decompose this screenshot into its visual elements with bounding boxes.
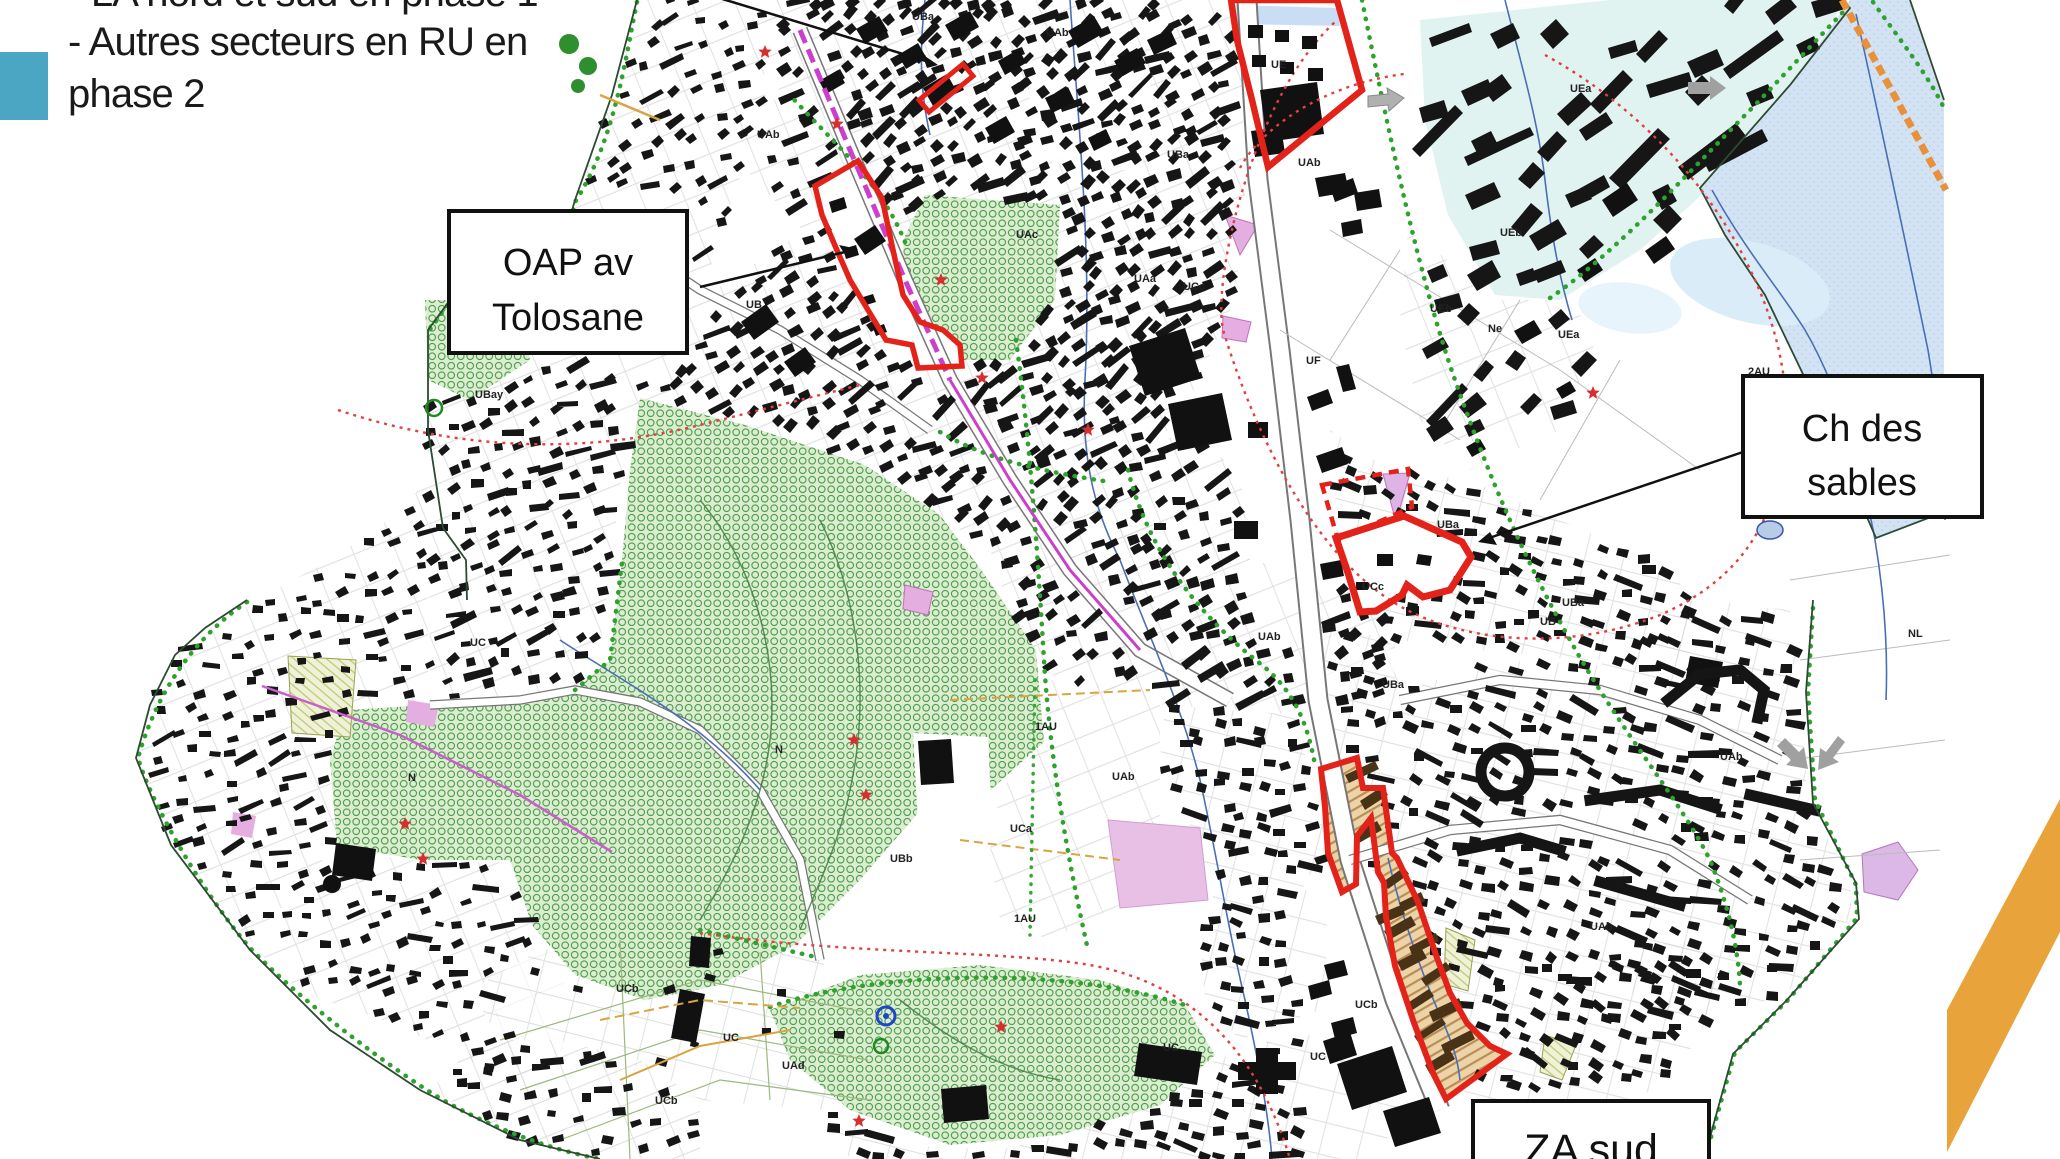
svg-text:UCb: UCb [616, 983, 639, 995]
svg-text:UAb: UAb [757, 129, 780, 141]
svg-text:UAb: UAb [1298, 157, 1321, 169]
svg-text:UCb: UCb [655, 1095, 678, 1107]
svg-text:- Autres secteurs en RU en: - Autres secteurs en RU en [68, 20, 527, 64]
svg-text:UCc: UCc [1183, 281, 1205, 293]
svg-text:ZA sud: ZA sud [1524, 1126, 1658, 1159]
svg-text:UCb: UCb [1355, 999, 1378, 1011]
svg-text:Ne: Ne [1488, 323, 1502, 335]
svg-text:N: N [408, 772, 416, 784]
svg-text:UC: UC [1163, 1042, 1179, 1054]
svg-text:UAc: UAc [1016, 229, 1038, 241]
svg-text:Tolosane: Tolosane [492, 297, 644, 339]
svg-text:UC: UC [1310, 1051, 1326, 1063]
svg-text:N: N [775, 744, 783, 756]
svg-text:UEa: UEa [1558, 329, 1580, 341]
svg-text:OAP av: OAP av [503, 242, 633, 284]
svg-text:UC: UC [723, 1032, 739, 1044]
svg-text:sables: sables [1807, 462, 1917, 504]
svg-text:UB: UB [746, 299, 762, 311]
svg-text:NL: NL [1908, 628, 1923, 640]
svg-text:UAb: UAb [1112, 771, 1135, 783]
svg-text:UAd: UAd [782, 1060, 805, 1072]
svg-text:phase 2: phase 2 [68, 72, 205, 116]
svg-text:UBay: UBay [475, 389, 504, 401]
svg-text:UEb: UEb [1500, 227, 1522, 239]
svg-text:1AU: 1AU [1035, 721, 1057, 733]
svg-text:UBa: UBa [1437, 519, 1460, 531]
svg-text:UCc: UCc [1362, 581, 1384, 593]
svg-text:UEb: UEb [1430, 303, 1452, 315]
svg-text:UBa: UBa [912, 11, 935, 23]
svg-text:UCa: UCa [1010, 823, 1033, 835]
svg-text:1AU: 1AU [1014, 913, 1036, 925]
svg-text:UAb: UAb [1258, 631, 1281, 643]
svg-text:UF: UF [1306, 355, 1321, 367]
svg-text:- LA nord et sud en phase 1: - LA nord et sud en phase 1 [68, 0, 538, 15]
svg-text:UE: UE [1271, 59, 1286, 71]
svg-text:UB: UB [1540, 616, 1556, 628]
svg-text:UBb: UBb [890, 853, 913, 865]
svg-text:Ch des: Ch des [1802, 408, 1922, 450]
svg-text:UC: UC [470, 637, 486, 649]
svg-text:UAb: UAb [1590, 921, 1613, 933]
svg-text:UAb: UAb [1720, 751, 1743, 763]
svg-text:UBa: UBa [1562, 597, 1585, 609]
svg-text:UBa: UBa [1167, 149, 1190, 161]
svg-text:UAa: UAa [1134, 273, 1157, 285]
svg-text:UBa: UBa [1382, 679, 1405, 691]
svg-text:UAb: UAb [1046, 27, 1069, 39]
svg-text:UEa: UEa [1570, 83, 1592, 95]
